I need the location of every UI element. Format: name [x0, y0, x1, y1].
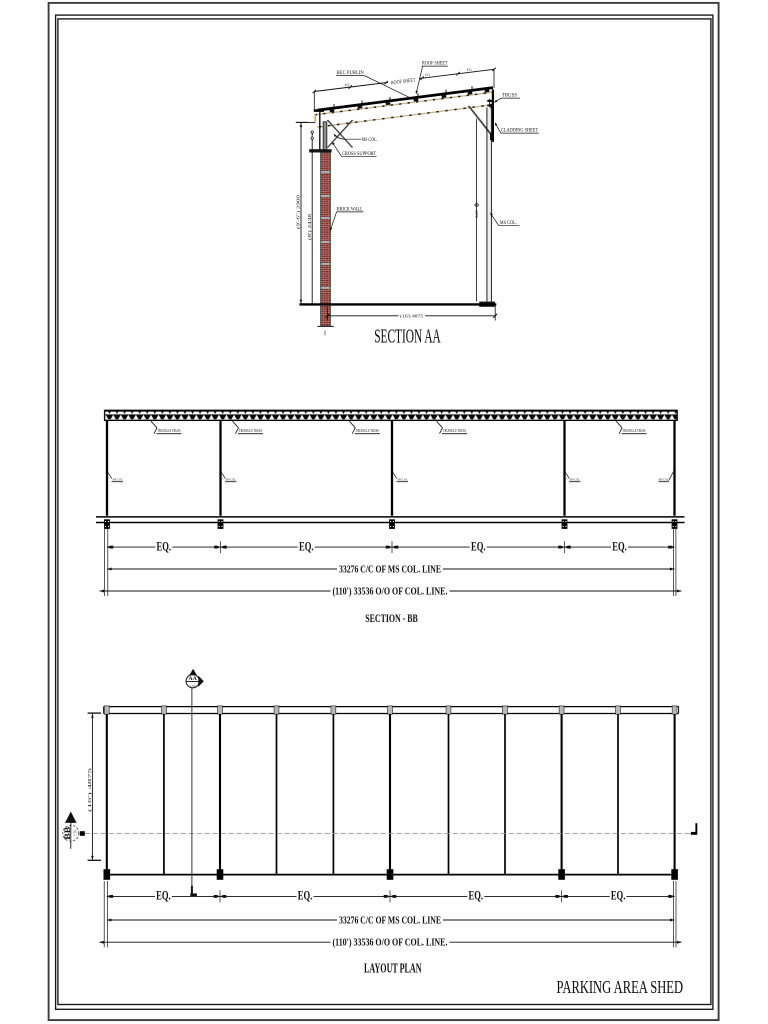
svg-text:MS COL: MS COL: [659, 477, 669, 481]
svg-text:LAYOUT PLAN: LAYOUT PLAN: [364, 962, 422, 977]
svg-text:300: 300: [323, 330, 327, 335]
svg-text:ROOF SHEET: ROOF SHEET: [422, 61, 448, 67]
svg-text:PARKING AREA SHED: PARKING AREA SHED: [557, 977, 684, 997]
svg-text:MS COL: MS COL: [113, 477, 123, 481]
svg-text:EQ.: EQ.: [299, 539, 314, 553]
svg-text:TRIANGLE TRUSS: TRIANGLE TRUSS: [443, 429, 466, 433]
svg-text:33276 C/C OF MS COL. LINE: 33276 C/C OF MS COL. LINE: [339, 564, 441, 575]
svg-text:SECTION AA: SECTION AA: [374, 326, 441, 347]
svg-text:TRIANGLE TRUSS: TRIANGLE TRUSS: [356, 429, 379, 433]
svg-text:TRIANGLE TRUSS: TRIANGLE TRUSS: [158, 429, 181, 433]
svg-text:MS COL.: MS COL.: [362, 138, 378, 143]
svg-text:(16') 4875: (16') 4875: [400, 314, 424, 319]
svg-text:1:50: 1:50: [73, 830, 77, 837]
svg-text:EQ.: EQ.: [298, 889, 313, 903]
svg-text:TRIANGLE TRUSS: TRIANGLE TRUSS: [623, 429, 646, 433]
svg-text:1:50: 1:50: [189, 685, 196, 689]
svg-text:33276 C/C OF MS COL. LINE: 33276 C/C OF MS COL. LINE: [339, 915, 441, 926]
svg-text:2440: 2440: [475, 210, 479, 217]
svg-text:REC PURLIN: REC PURLIN: [337, 70, 364, 76]
svg-text:(8') 2438: (8') 2438: [307, 214, 312, 240]
svg-text:BB: BB: [63, 826, 72, 840]
svg-text:MS COL: MS COL: [570, 477, 580, 481]
svg-text:(110') 33536 O/O OF COL. LINE.: (110') 33536 O/O OF COL. LINE.: [333, 938, 448, 949]
svg-text:EQ.: EQ.: [612, 539, 627, 553]
svg-text:EQ.: EQ.: [157, 539, 172, 553]
svg-text:(110') 33536 O/O OF COL. LINE.: (110') 33536 O/O OF COL. LINE.: [333, 586, 448, 597]
svg-text:MS COL: MS COL: [226, 477, 236, 481]
svg-text:MS COL: MS COL: [398, 477, 408, 481]
svg-text:SECTION - BB: SECTION - BB: [365, 613, 418, 625]
svg-text:EQ.: EQ.: [156, 889, 171, 903]
svg-text:TRIANGLE TRUSS: TRIANGLE TRUSS: [239, 429, 262, 433]
svg-text:EQ.: EQ.: [611, 889, 626, 903]
svg-text:EQ.: EQ.: [469, 889, 484, 903]
svg-text:(9'-6") 2900: (9'-6") 2900: [295, 195, 300, 229]
svg-text:(16') 4875: (16') 4875: [87, 766, 92, 812]
svg-text:AA: AA: [188, 677, 197, 682]
svg-text:EQ.: EQ.: [471, 539, 486, 553]
